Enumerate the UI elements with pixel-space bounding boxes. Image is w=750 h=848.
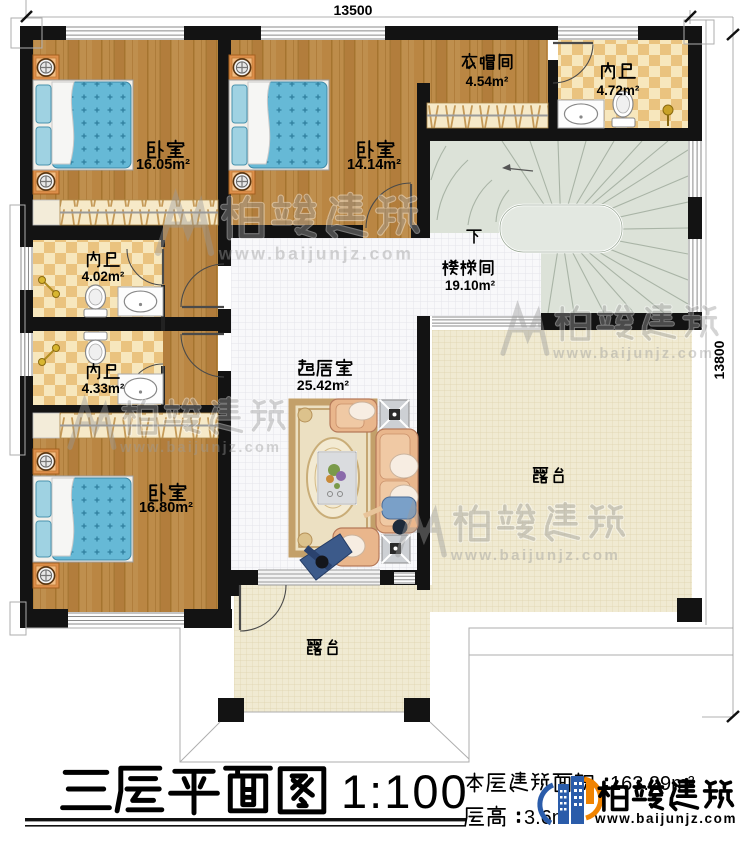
svg-text:www.baijunjz.com: www.baijunjz.com [119, 440, 281, 456]
svg-text:16.05m²: 16.05m² [136, 157, 190, 173]
svg-text:www.baijunjz.com: www.baijunjz.com [594, 811, 737, 826]
svg-text:13500: 13500 [334, 2, 373, 18]
svg-text:4.72m²: 4.72m² [597, 83, 640, 98]
svg-text:www.baijunjz.com: www.baijunjz.com [552, 346, 714, 362]
svg-text:14.14m²: 14.14m² [347, 157, 401, 173]
svg-text:www.baijunjz.com: www.baijunjz.com [218, 243, 414, 263]
svg-text:25.42m²: 25.42m² [297, 377, 349, 393]
svg-text:1:100: 1:100 [341, 765, 469, 818]
svg-text:19.10m²: 19.10m² [445, 278, 496, 293]
svg-text:www.baijunjz.com: www.baijunjz.com [450, 547, 620, 564]
svg-text:16.80m²: 16.80m² [139, 500, 193, 516]
svg-text:4.02m²: 4.02m² [82, 269, 125, 284]
svg-text:4.33m²: 4.33m² [82, 381, 125, 396]
svg-text:4.54m²: 4.54m² [466, 74, 509, 89]
